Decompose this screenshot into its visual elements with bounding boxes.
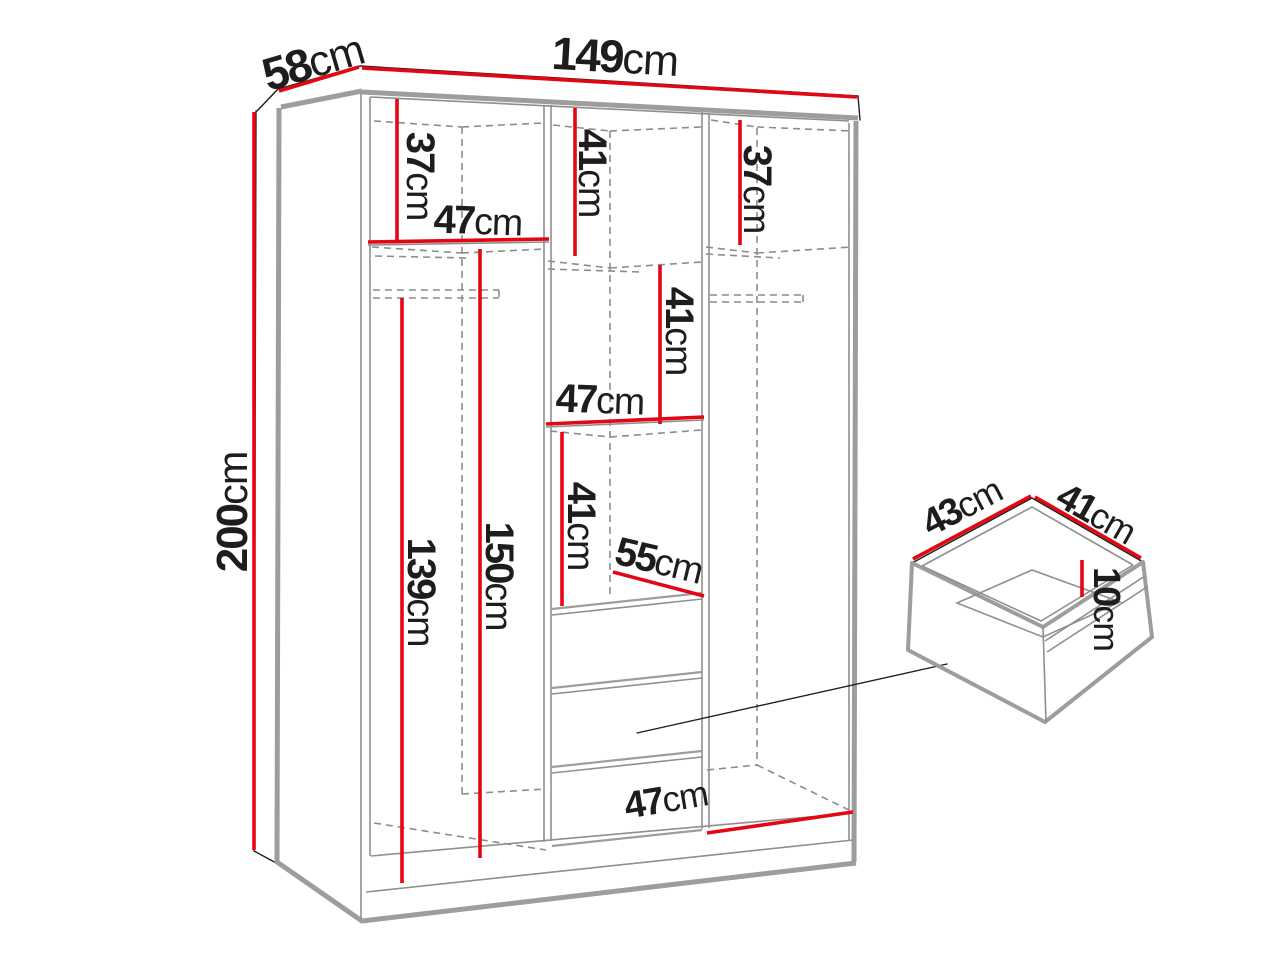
dim-label-left-139: 139cm: [401, 538, 441, 647]
dim-label-mid-47: 47cm: [555, 378, 645, 421]
dim-label-width-149: 149cm: [551, 30, 680, 84]
dim-label-left-47: 47cm: [433, 199, 523, 242]
wardrobe-partitions: [544, 105, 709, 842]
dim-label-right-37: 37cm: [737, 145, 777, 234]
dim-line-bottom-47: [707, 812, 853, 833]
dim-label-mid-41-third: 41cm: [561, 482, 601, 571]
dim-label-height-200: 200cm: [211, 452, 255, 573]
dim-label-mid-41-second: 41cm: [659, 287, 699, 376]
wardrobe-dimension-diagram: { "colors": { "dimension_red": "#e30613"…: [0, 0, 1280, 960]
dim-label-drawer-10: 10cm: [1087, 567, 1125, 651]
dim-label-left-150: 150cm: [479, 522, 519, 631]
dim-label-mid-41-top: 41cm: [572, 129, 612, 218]
wardrobe-shelves: [368, 242, 704, 427]
